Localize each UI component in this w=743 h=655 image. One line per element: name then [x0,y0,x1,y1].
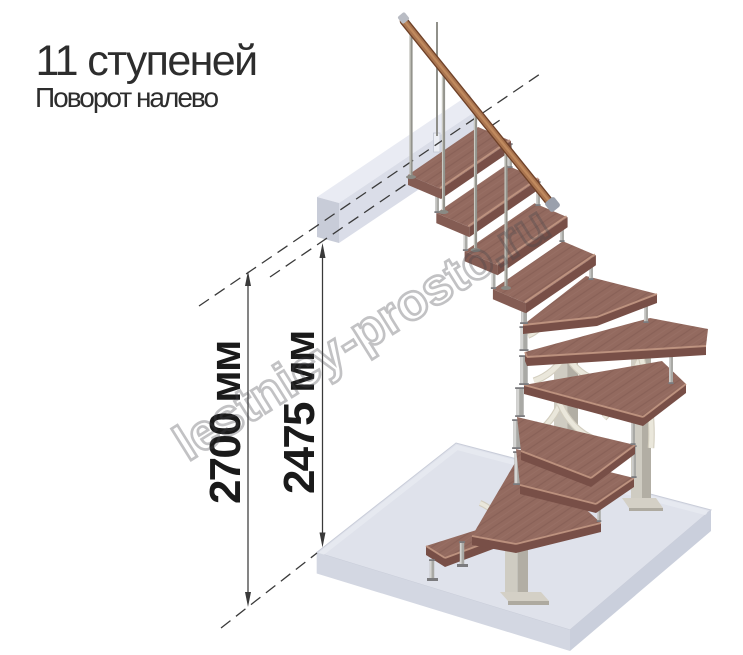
svg-text:lestnicy-prosto.ru: lestnicy-prosto.ru [164,195,560,472]
svg-text:Поворот налево: Поворот налево [35,82,218,113]
svg-text:11 ступеней: 11 ступеней [36,37,257,85]
